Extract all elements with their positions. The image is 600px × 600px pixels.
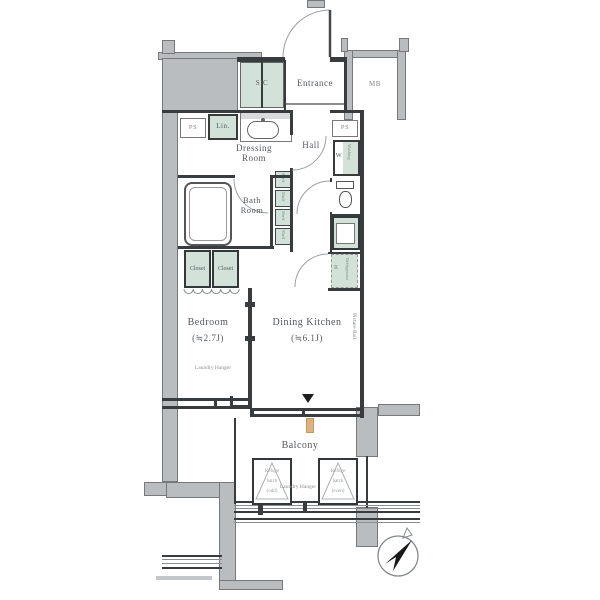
room-label-ps: PS <box>180 124 206 131</box>
laundry-hanger-bedroom: Laundry Hanger <box>190 365 236 372</box>
room-label-hall: Hall <box>294 140 328 150</box>
laundry-hanger-balcony: Laundry Hanger <box>275 484 321 491</box>
hatch-triangle-icon <box>322 463 354 499</box>
room-label-mb: MB <box>354 80 396 88</box>
entrance-door-arc <box>283 10 330 57</box>
accordion-arc <box>212 289 221 294</box>
room-label-balcony: Balcony <box>264 440 336 452</box>
washer-label: W <box>334 152 344 159</box>
closet-accordion-arcs <box>184 289 239 294</box>
accordion-arc <box>230 289 239 294</box>
bedroom-size: (≒2.7J) <box>168 333 248 343</box>
toilet-door-arc <box>297 181 330 214</box>
room-label-entrance: Entrance <box>286 78 344 88</box>
compass-north-arrow <box>385 540 412 571</box>
room-label-bedroom: Bedroom <box>168 317 248 329</box>
room-label-ps-right: PS <box>332 120 358 137</box>
accordion-arc <box>193 289 202 294</box>
room-label-sic: SIC <box>240 79 284 87</box>
room-label-bath: Bath Room <box>233 196 271 216</box>
plan-annotations <box>0 0 600 600</box>
room-label-dining-kitchen: Dining Kitchen <box>250 317 364 329</box>
compass-icon <box>378 528 418 576</box>
dk-door-arc <box>295 254 328 287</box>
picture-rail-label: Picture Rail <box>351 313 357 363</box>
accordion-arc <box>221 289 230 294</box>
accordion-arc <box>184 289 193 294</box>
floor-plan: Washing R Refrigerator Shelf Shelf Shelf… <box>0 0 600 600</box>
room-label-dressing: Dressing Room <box>224 143 284 164</box>
accordion-arc <box>202 289 211 294</box>
vent-marker-icon <box>302 394 314 403</box>
dining-kitchen-size: (≒6.1J) <box>250 333 364 343</box>
hatch-triangle-icon <box>256 463 288 499</box>
room-label-lin: Lin. <box>208 122 238 130</box>
